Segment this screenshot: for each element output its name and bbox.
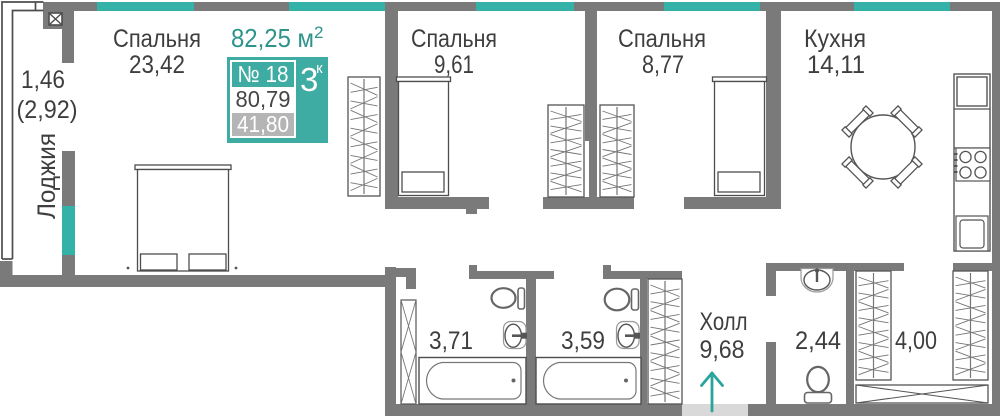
- svg-text:Спальня: Спальня: [411, 25, 497, 53]
- svg-text:2,44: 2,44: [795, 327, 841, 355]
- svg-text:9,61: 9,61: [434, 51, 474, 79]
- svg-text:№ 18: № 18: [238, 61, 289, 87]
- svg-text:Спальня: Спальня: [113, 25, 201, 53]
- svg-text:Холл: Холл: [700, 308, 748, 336]
- svg-text:82,25 м2: 82,25 м2: [231, 23, 323, 53]
- svg-text:3,71: 3,71: [429, 327, 473, 355]
- svg-text:Кухня: Кухня: [804, 25, 866, 53]
- svg-text:41,80: 41,80: [237, 111, 289, 137]
- svg-text:3,59: 3,59: [561, 327, 605, 355]
- svg-text:80,79: 80,79: [236, 86, 291, 112]
- svg-text:к: к: [316, 60, 323, 77]
- svg-text:1,46: 1,46: [21, 66, 65, 94]
- svg-text:23,42: 23,42: [129, 51, 185, 79]
- svg-text:4,00: 4,00: [895, 327, 937, 355]
- svg-text:8,77: 8,77: [642, 51, 684, 79]
- svg-text:(2,92): (2,92): [17, 96, 78, 124]
- svg-text:14,11: 14,11: [807, 51, 865, 79]
- svg-text:9,68: 9,68: [700, 336, 745, 364]
- svg-text:Спальня: Спальня: [618, 25, 706, 53]
- svg-text:Лоджия: Лоджия: [33, 133, 61, 219]
